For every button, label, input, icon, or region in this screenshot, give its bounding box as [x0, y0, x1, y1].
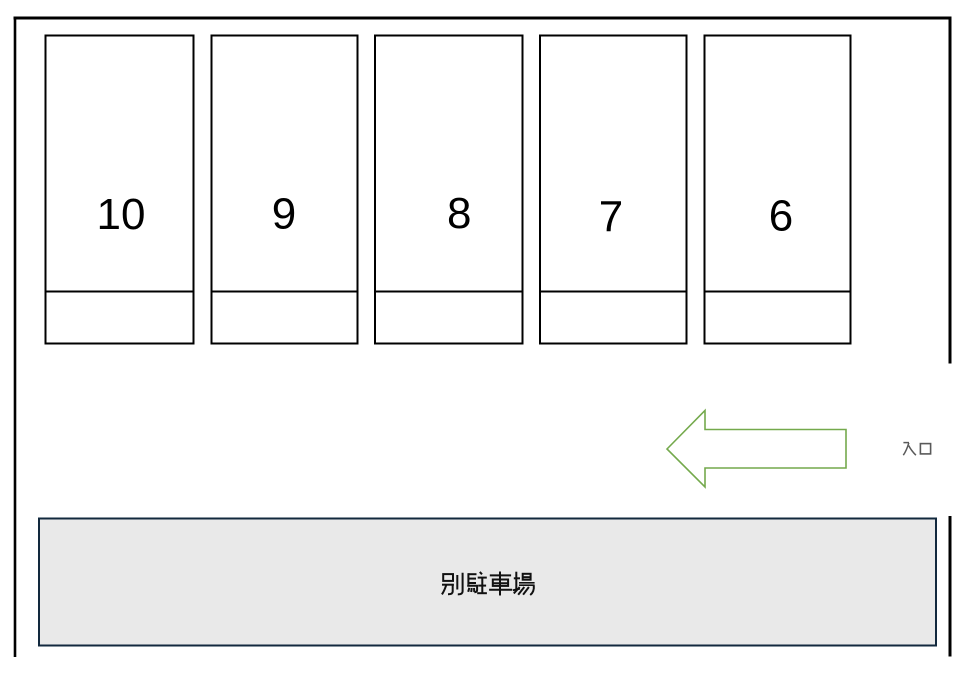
svg-text:9: 9 — [272, 189, 296, 238]
svg-text:10: 10 — [97, 190, 146, 239]
svg-text:8: 8 — [447, 189, 471, 238]
svg-text:6: 6 — [769, 191, 793, 240]
svg-text:7: 7 — [599, 193, 623, 242]
